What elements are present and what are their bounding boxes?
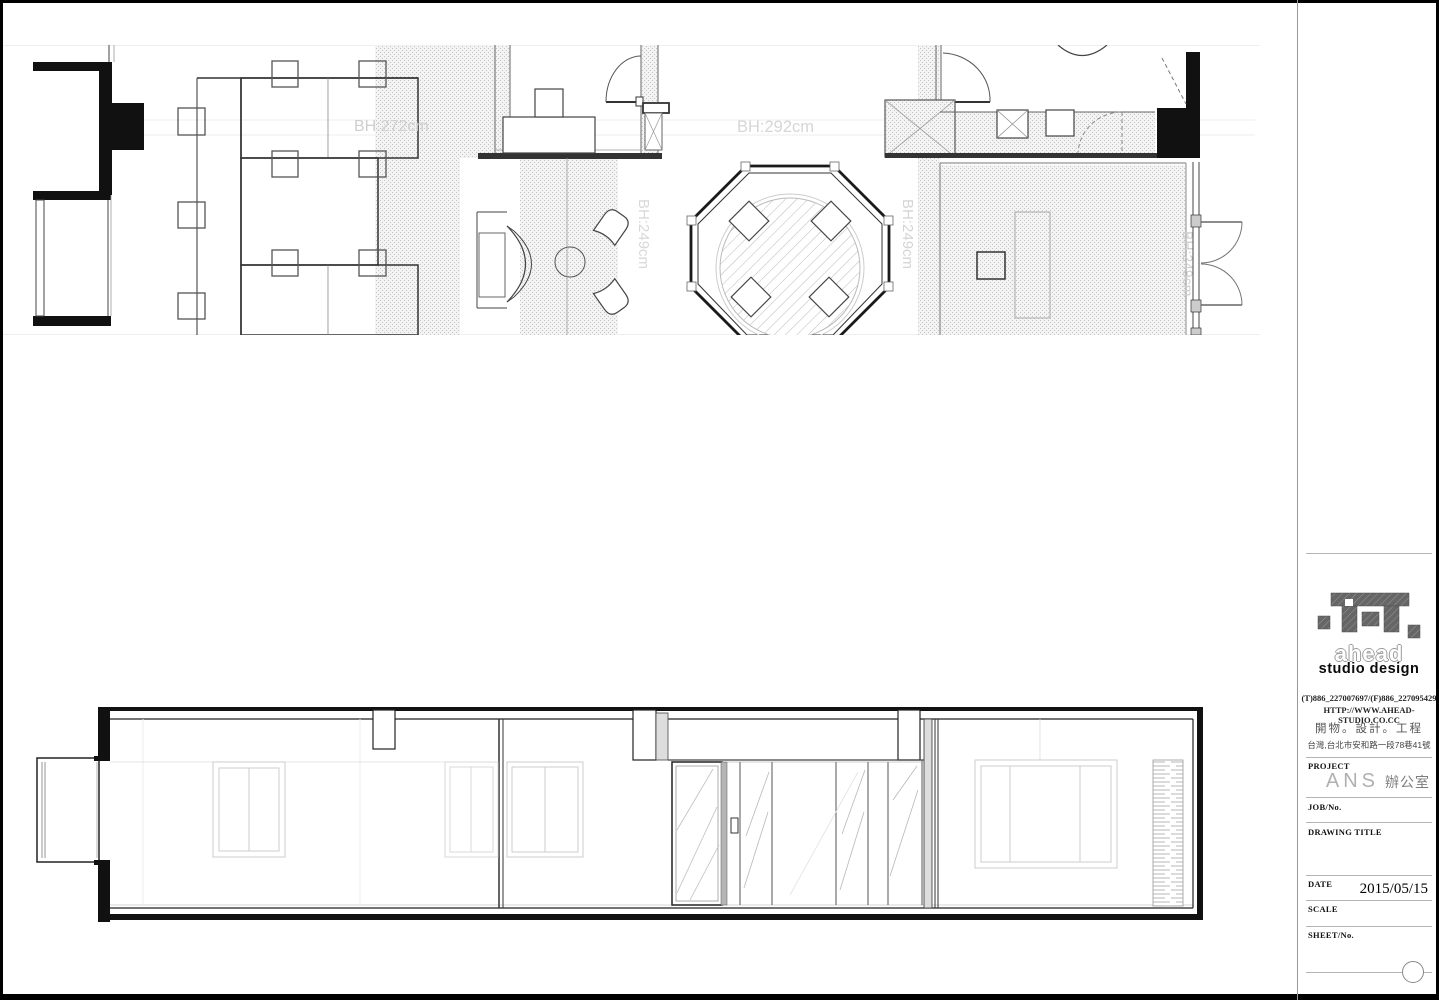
- ahead-logo-icon: [1298, 588, 1439, 648]
- phone-fax: (T)886_227007697/(F)886_227095429: [1298, 693, 1439, 703]
- date-value: 2015/05/15: [1360, 881, 1428, 898]
- project-name: ANS 辦公室: [1326, 770, 1430, 793]
- project-name-zh: 辦公室: [1385, 772, 1430, 792]
- divider: [1306, 822, 1432, 823]
- divider: [1306, 875, 1432, 876]
- divider: [1306, 757, 1432, 758]
- left-wall: [33, 45, 144, 326]
- project-name-en: ANS: [1326, 770, 1379, 793]
- drawing-title-label: DRAWING TITLE: [1308, 827, 1382, 837]
- brand-subtitle: studio design: [1298, 661, 1439, 677]
- bh-label-249-c: BH:249cm: [1180, 231, 1196, 296]
- scale-label: SCALE: [1308, 904, 1338, 914]
- wall-notches: [373, 710, 920, 760]
- sheet-number-circle: [1402, 961, 1424, 983]
- divider: [1306, 900, 1432, 901]
- glass-entrance: [668, 760, 924, 905]
- bh-label-272: BH:272cm: [354, 118, 429, 135]
- cad-drawing: BH:272cm BH:292cm BH:249cm BH:249cm BH:2…: [0, 0, 1439, 1000]
- windows: [213, 760, 1117, 868]
- job-label: JOB/No.: [1308, 802, 1342, 812]
- title-block: ahead studio design (T)886_227007697/(F)…: [1297, 0, 1439, 1000]
- bh-label-249-b: BH:249cm: [899, 199, 916, 269]
- services-line: 開物。設計。工程: [1298, 720, 1439, 736]
- bh-label-292: BH:292cm: [737, 118, 814, 136]
- divider: [1306, 797, 1432, 798]
- wood-panel: [1153, 760, 1183, 906]
- divider: [1306, 926, 1432, 927]
- sheet-label: SHEET/No.: [1308, 930, 1354, 940]
- bh-label-249-a: BH:249cm: [635, 199, 652, 269]
- octagon-meeting-room: [687, 162, 893, 342]
- ceiling-fixtures: [178, 61, 386, 319]
- drawing-sheet: BH:272cm BH:292cm BH:249cm BH:249cm BH:2…: [0, 0, 1439, 1000]
- floor-plan: BH:272cm BH:292cm BH:249cm BH:249cm BH:2…: [3, 45, 1260, 342]
- date-label: DATE: [1308, 879, 1332, 889]
- shell-plan: [37, 707, 1203, 922]
- address: 台灣,台北市安和路一段78巷41號: [1298, 739, 1439, 751]
- divider: [1306, 553, 1432, 554]
- door-handle: [731, 818, 738, 833]
- bay-window: [37, 756, 110, 865]
